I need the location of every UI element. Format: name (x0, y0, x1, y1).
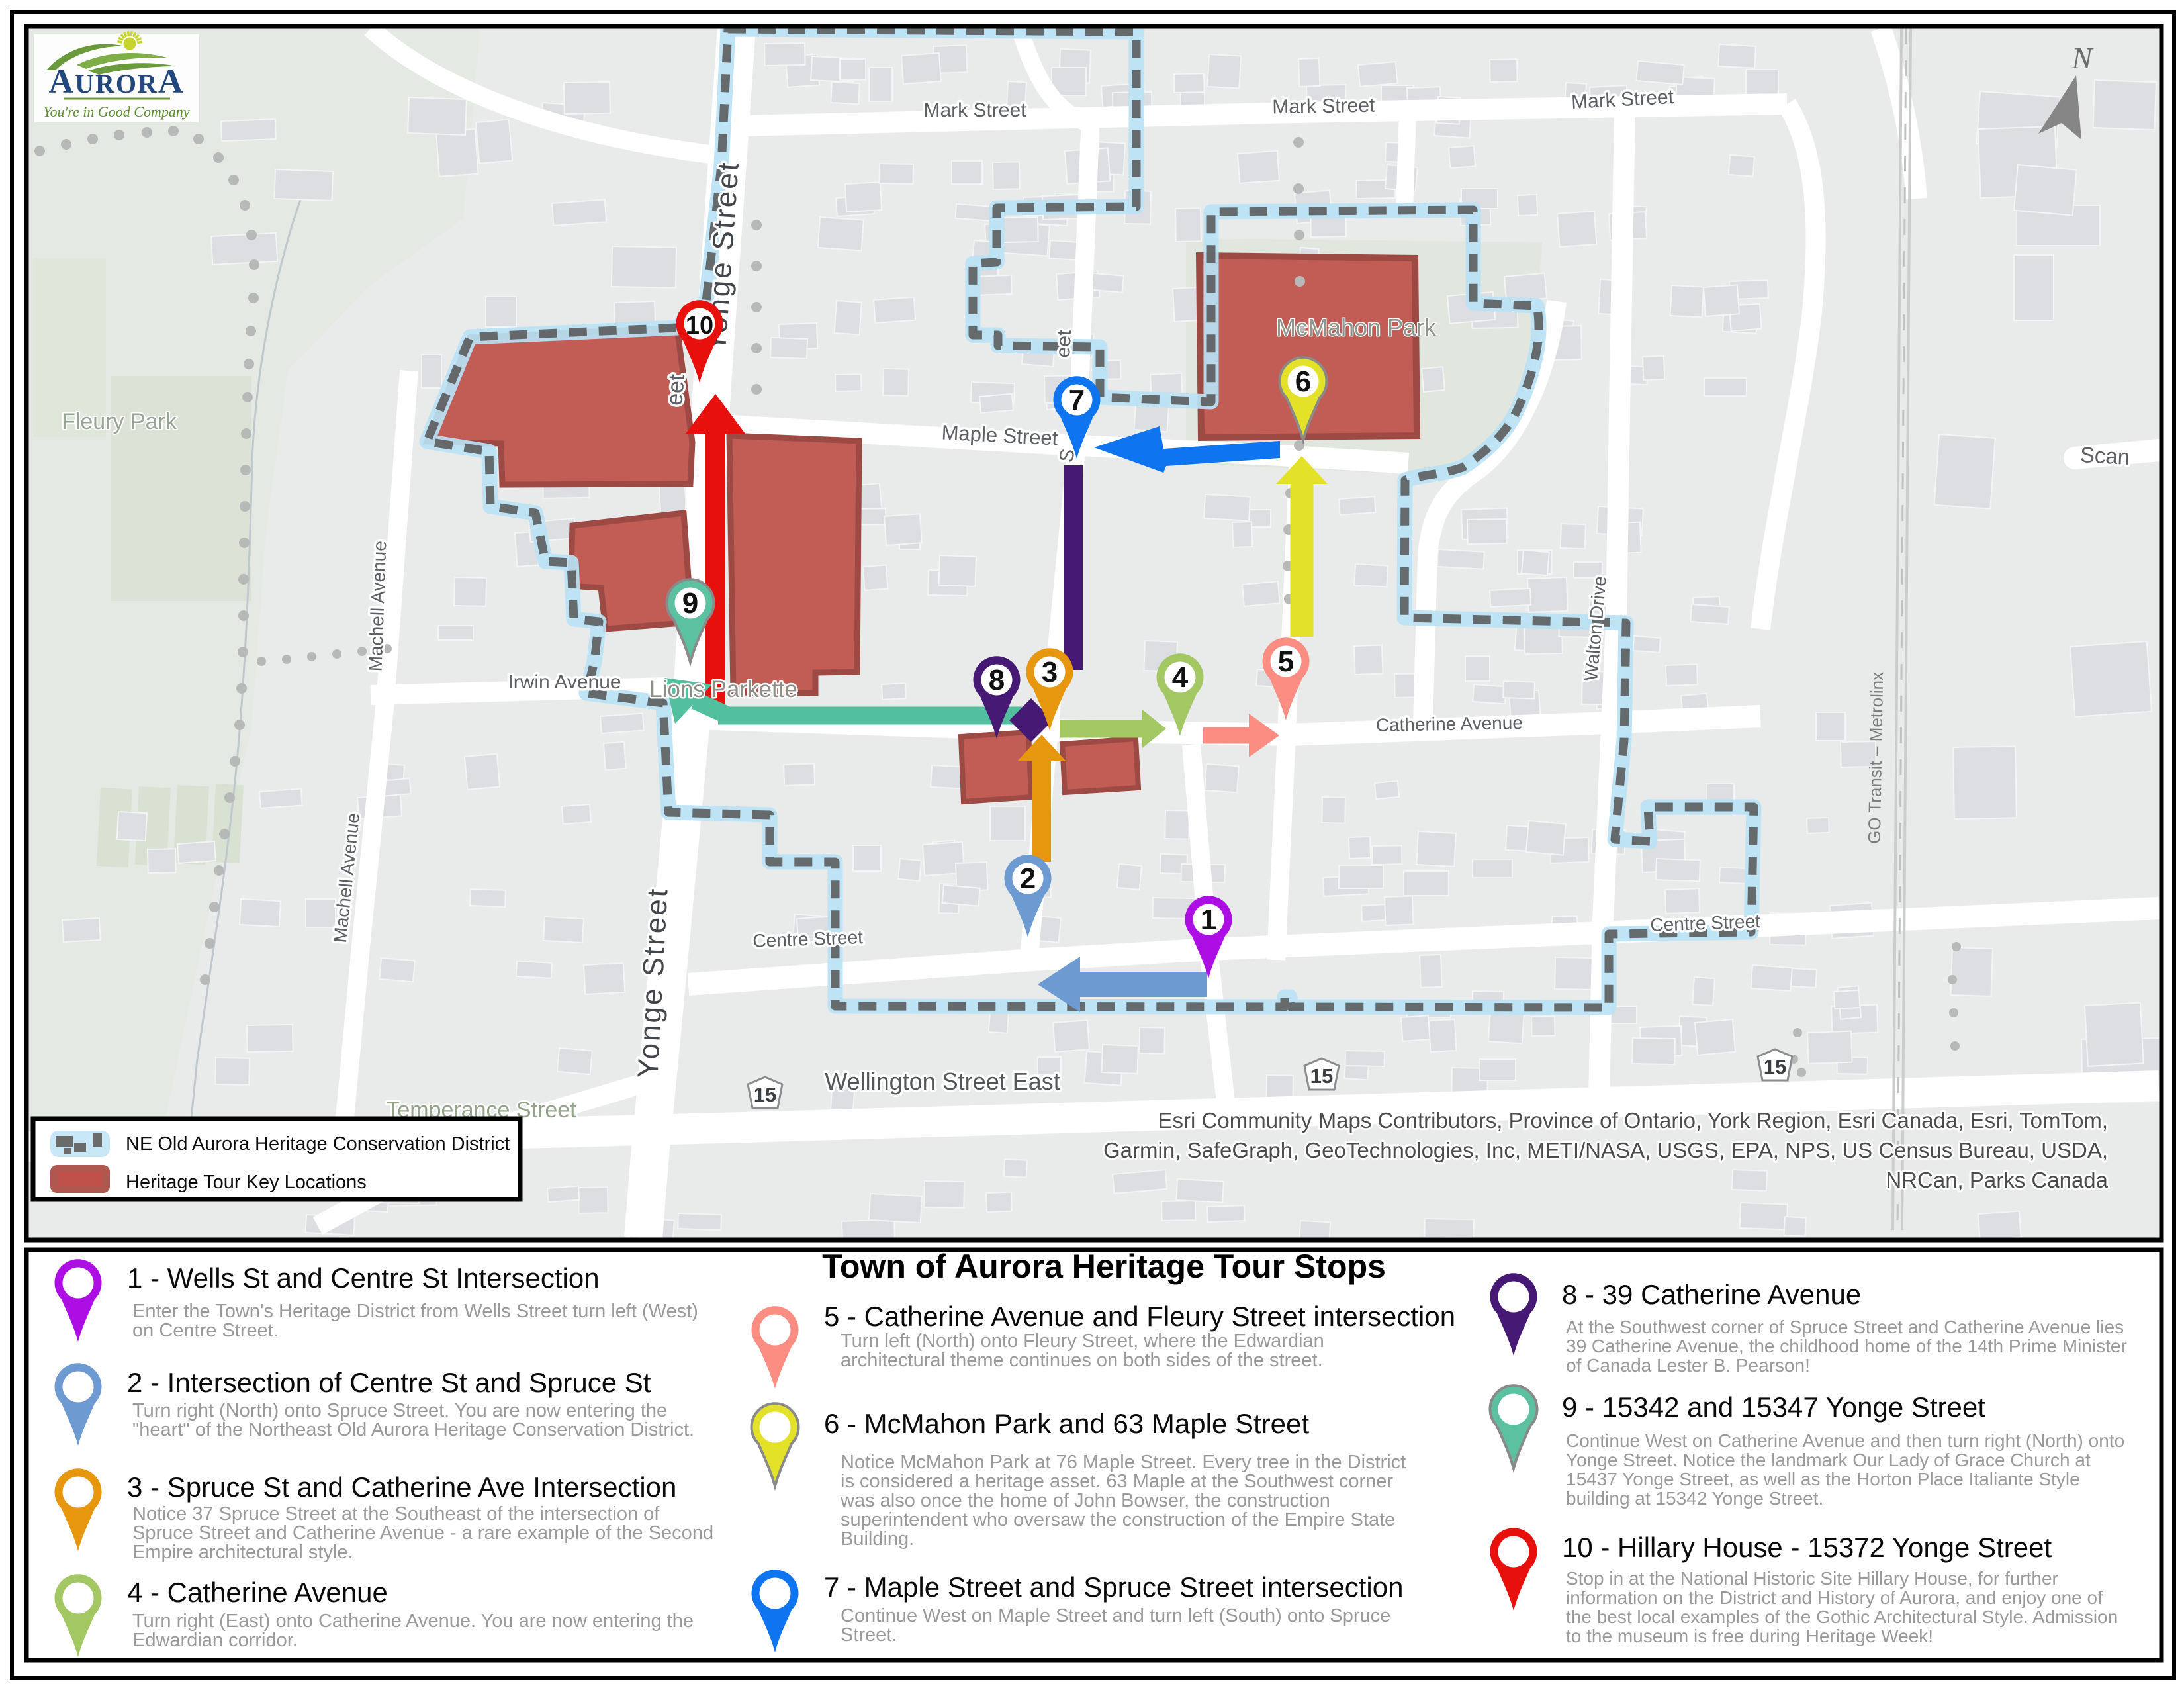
svg-text:Wellington Street East: Wellington Street East (825, 1068, 1060, 1095)
svg-text:Mark Street: Mark Street (923, 99, 1026, 121)
svg-text:Centre Street: Centre Street (1650, 911, 1761, 935)
svg-text:15: 15 (1764, 1055, 1786, 1078)
svg-text:7 - Maple Street and Spruce St: 7 - Maple Street and Spruce Street inter… (824, 1571, 1403, 1603)
svg-text:2 - Intersection of Centre St: 2 - Intersection of Centre St and Spruce… (127, 1367, 651, 1398)
svg-text:9 - 15342 and 15347 Yonge Stre: 9 - 15342 and 15347 Yonge Street (1562, 1391, 1985, 1423)
svg-text:Fleury Park: Fleury Park (62, 409, 177, 434)
svg-text:5: 5 (1278, 645, 1294, 678)
svg-text:Esri Community Maps Contributo: Esri Community Maps Contributors, Provin… (1158, 1108, 2108, 1133)
svg-text:eet: eet (662, 373, 690, 406)
svg-text:15: 15 (1310, 1064, 1333, 1088)
svg-text:Mark Street: Mark Street (1272, 95, 1375, 118)
svg-text:eet: eet (1052, 329, 1075, 358)
svg-text:You're in Good Company: You're in Good Company (43, 103, 189, 120)
svg-text:1 - Wells St and Centre St Int: 1 - Wells St and Centre St Intersection (127, 1262, 600, 1293)
svg-text:Lions Parkette: Lions Parkette (649, 677, 797, 702)
svg-text:8: 8 (989, 664, 1005, 696)
svg-text:Catherine Avenue: Catherine Avenue (1376, 712, 1524, 735)
svg-text:2: 2 (1020, 863, 1036, 895)
svg-text:Garmin, SafeGraph, GeoTechnolo: Garmin, SafeGraph, GeoTechnologies, Inc,… (1103, 1138, 2108, 1162)
svg-text:10: 10 (686, 312, 713, 340)
svg-text:6: 6 (1295, 365, 1311, 398)
svg-text:9: 9 (682, 587, 698, 620)
svg-text:4 - Catherine Avenue: 4 - Catherine Avenue (127, 1577, 388, 1608)
svg-text:1: 1 (1201, 904, 1216, 936)
svg-text:7: 7 (1069, 384, 1085, 416)
svg-text:Turn right (North) onto Spruce: Turn right (North) onto Spruce Street. Y… (132, 1400, 694, 1440)
svg-text:NE Old Aurora Heritage Conserv: NE Old Aurora Heritage Conservation Dist… (126, 1133, 510, 1154)
svg-text:Irwin Avenue: Irwin Avenue (508, 671, 621, 693)
svg-text:6 - McMahon Park and 63 Maple: 6 - McMahon Park and 63 Maple Street (824, 1408, 1309, 1439)
svg-text:AURORA: AURORA (49, 63, 185, 101)
svg-text:GO Transit – Metrolinx: GO Transit – Metrolinx (1864, 672, 1888, 845)
svg-text:Centre Street: Centre Street (752, 927, 864, 951)
svg-text:10 - Hillary House - 15372 Yon: 10 - Hillary House - 15372 Yonge Street (1562, 1532, 2052, 1563)
svg-text:15: 15 (754, 1083, 776, 1106)
svg-text:N: N (2071, 41, 2094, 75)
svg-text:3 - Spruce St and Catherine Av: 3 - Spruce St and Catherine Ave Intersec… (127, 1472, 676, 1503)
svg-text:5 - Catherine Avenue and Fleur: 5 - Catherine Avenue and Fleury Street i… (824, 1301, 1455, 1332)
svg-text:Town of Aurora Heritage Tour S: Town of Aurora Heritage Tour Stops (822, 1248, 1386, 1285)
svg-text:Scan: Scan (2079, 442, 2130, 469)
svg-text:McMahon Park: McMahon Park (1276, 314, 1437, 341)
svg-text:8 - 39 Catherine Avenue: 8 - 39 Catherine Avenue (1562, 1279, 1861, 1310)
svg-text:4: 4 (1172, 661, 1189, 694)
svg-text:3: 3 (1042, 656, 1058, 688)
svg-text:Turn left (North) onto Fleury: Turn left (North) onto Fleury Street, wh… (841, 1331, 1324, 1371)
svg-text:NRCan, Parks Canada: NRCan, Parks Canada (1886, 1168, 2108, 1192)
svg-text:Heritage Tour Key Locations: Heritage Tour Key Locations (126, 1172, 367, 1193)
